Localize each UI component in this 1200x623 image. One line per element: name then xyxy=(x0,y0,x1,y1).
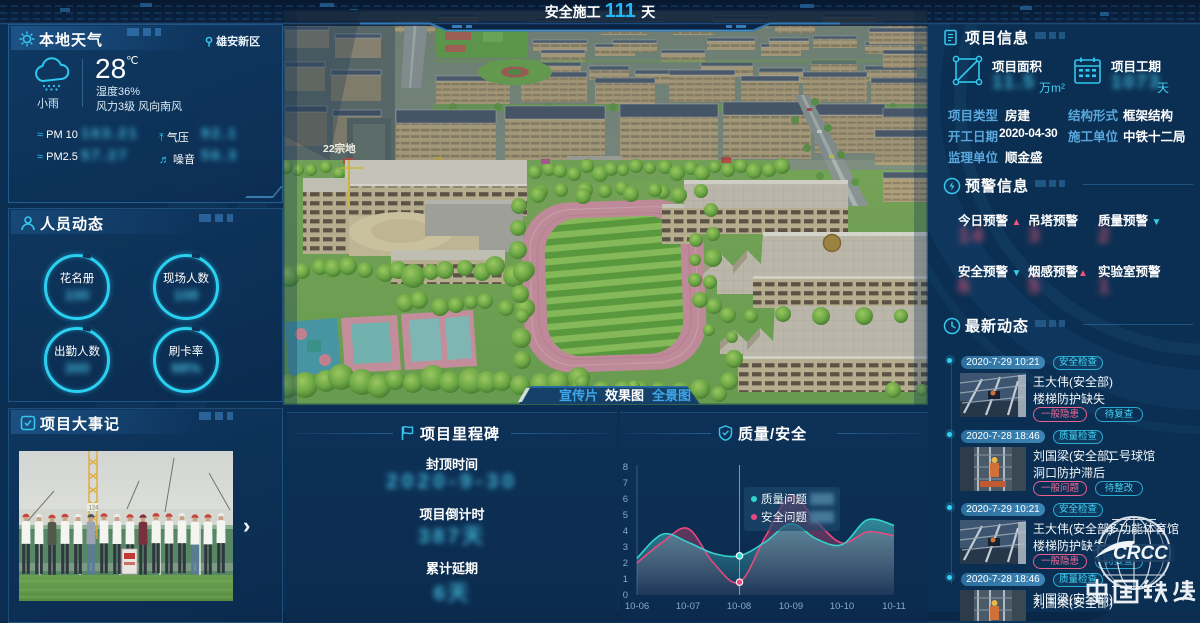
svg-text:8: 8 xyxy=(623,462,628,473)
svg-text:宣传片: 宣传片 xyxy=(559,388,598,403)
svg-text:1: 1 xyxy=(623,574,628,585)
svg-text:4: 4 xyxy=(623,526,628,537)
svg-text:22宗地: 22宗地 xyxy=(323,142,356,155)
svg-text:10-08: 10-08 xyxy=(727,601,751,612)
svg-text:10-10: 10-10 xyxy=(830,601,854,612)
svg-text:2: 2 xyxy=(623,558,628,569)
svg-text:CRCC: CRCC xyxy=(1113,543,1168,564)
svg-text:10-06: 10-06 xyxy=(625,601,649,612)
svg-text:质量问题: 质量问题 xyxy=(761,493,807,506)
svg-text:安全问题: 安全问题 xyxy=(761,510,807,524)
svg-text:10-07: 10-07 xyxy=(676,601,700,612)
svg-text:10-11: 10-11 xyxy=(882,601,906,612)
svg-text:5: 5 xyxy=(623,510,628,521)
svg-text:124: 124 xyxy=(89,506,100,512)
svg-text:效果图: 效果图 xyxy=(605,388,644,403)
svg-text:10-09: 10-09 xyxy=(779,601,803,612)
svg-text:3: 3 xyxy=(623,542,628,553)
svg-text:0: 0 xyxy=(623,590,628,601)
svg-text:7: 7 xyxy=(623,478,628,489)
svg-text:6: 6 xyxy=(623,494,628,505)
svg-text:全景图: 全景图 xyxy=(651,388,691,403)
